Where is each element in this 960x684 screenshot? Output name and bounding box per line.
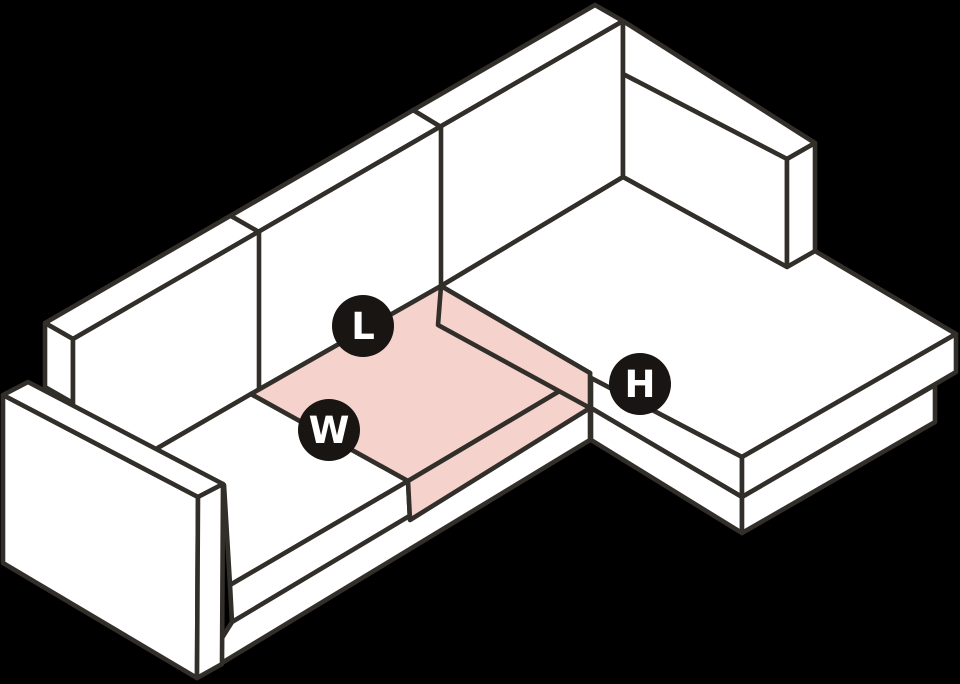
sofa-dimension-diagram: LWH — [0, 0, 960, 684]
armrest-front — [197, 484, 223, 678]
dimension-badge-label-height: H — [625, 363, 656, 406]
chaise-backrest-end — [787, 143, 815, 267]
sofa-diagram-svg: LWH — [0, 0, 960, 684]
dimension-badge-label-length: L — [351, 305, 375, 348]
dimension-badge-height: H — [609, 353, 671, 415]
dimension-badge-width: W — [298, 399, 360, 461]
dimension-badge-length: L — [332, 295, 394, 357]
dimension-badge-label-width: W — [309, 409, 350, 452]
